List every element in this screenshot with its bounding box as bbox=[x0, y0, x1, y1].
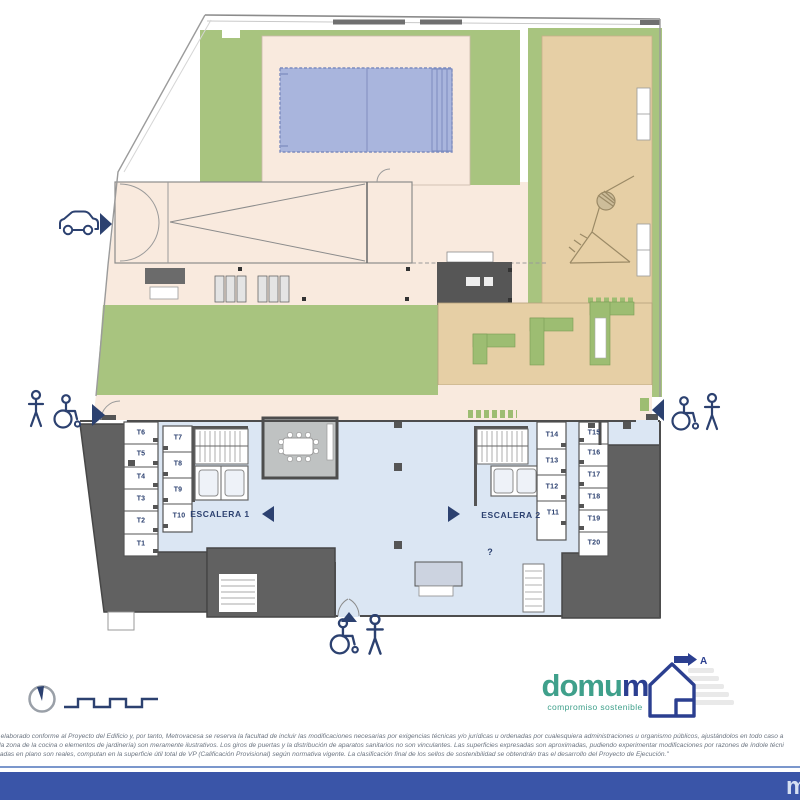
logo-tagline: compromiso sostenible bbox=[540, 702, 650, 712]
lawn bbox=[96, 305, 440, 397]
pedestrian-entrance-right bbox=[652, 394, 719, 430]
storage-block-right-outer bbox=[579, 422, 608, 556]
storage-block-right-inner bbox=[537, 422, 566, 540]
meeting-room bbox=[263, 418, 337, 478]
person-icon bbox=[705, 394, 719, 429]
room-label-t6: T6 bbox=[137, 430, 146, 437]
room-label-t5: T5 bbox=[137, 451, 146, 458]
energy-rating-letter: A bbox=[700, 656, 707, 667]
house-outline bbox=[650, 664, 694, 716]
room-label-t19: T19 bbox=[588, 516, 601, 523]
car-icon bbox=[60, 212, 98, 235]
room-label-t8: T8 bbox=[174, 461, 183, 468]
room-label-t18: T18 bbox=[588, 494, 601, 501]
logo-block: domum compromiso sostenible bbox=[540, 670, 650, 712]
person-icon bbox=[29, 391, 43, 426]
stair-core-1 bbox=[192, 426, 248, 502]
table bbox=[283, 438, 313, 455]
room-label-t13: T13 bbox=[546, 458, 559, 465]
logo-wordmark: domum bbox=[540, 670, 650, 701]
car-entrance bbox=[60, 212, 112, 236]
entry-threshold-right bbox=[646, 414, 658, 420]
room-label-t14: T14 bbox=[546, 432, 559, 439]
room-label-t17: T17 bbox=[588, 472, 601, 479]
room-label-t1: T1 bbox=[137, 541, 146, 548]
room-label-t16: T16 bbox=[588, 450, 601, 457]
stair1-label: ESCALERA 1 bbox=[190, 509, 250, 519]
disclaimer-line-3: Dejadas en plano son reales, computan en… bbox=[0, 750, 800, 759]
outdoor-counter bbox=[447, 252, 493, 262]
energy-house-icon: A bbox=[636, 652, 736, 722]
room-label-t9: T9 bbox=[174, 487, 183, 494]
room-label-t10: T10 bbox=[173, 513, 186, 520]
pool bbox=[280, 68, 452, 152]
disclaimer-text: ido elaborado conforme al Proyecto del E… bbox=[0, 732, 800, 759]
room-label-t2: T2 bbox=[137, 518, 146, 525]
room-label-t3: T3 bbox=[137, 496, 146, 503]
wheelchair-icon bbox=[673, 397, 699, 429]
room-label-t7: T7 bbox=[174, 435, 183, 442]
room-label-t15: T15 bbox=[588, 430, 601, 437]
pedestrian-entrance-left bbox=[29, 391, 105, 428]
exterior-door-step bbox=[108, 612, 134, 630]
brochure-page: T6 T5 T4 T3 T2 T1 T7 T8 T9 T10 T14 T13 T… bbox=[0, 0, 800, 800]
person-icon bbox=[367, 615, 382, 654]
room-label-t20: T20 bbox=[588, 540, 601, 547]
stair2-label: ESCALERA 2 bbox=[481, 510, 541, 520]
footer-brand-letter: m bbox=[786, 773, 800, 800]
disclaimer-line-1: ido elaborado conforme al Proyecto del E… bbox=[0, 732, 800, 741]
graphic-scale-bar bbox=[64, 699, 158, 707]
building bbox=[80, 398, 660, 630]
room-label-t11: T11 bbox=[547, 510, 559, 517]
pedestrian-entrance-bottom bbox=[331, 615, 383, 654]
disclaimer-line-2: en la zona de la cocina o elementos de j… bbox=[0, 741, 800, 750]
info-mark: ? bbox=[487, 547, 493, 557]
rating-arrow bbox=[688, 653, 697, 666]
room-label-t4: T4 bbox=[137, 474, 146, 481]
wheelchair-icon bbox=[55, 395, 81, 427]
room-label-t12: T12 bbox=[546, 484, 559, 491]
wheelchair-icon bbox=[331, 619, 358, 653]
footer-brand-bar: m bbox=[0, 772, 800, 800]
reception-desk bbox=[415, 562, 462, 586]
north-arrow-icon bbox=[30, 686, 55, 712]
pergola-table bbox=[145, 268, 185, 284]
storage-block-left-outer bbox=[124, 422, 158, 556]
logo-text-green: domu bbox=[542, 668, 622, 703]
entry-arrow-right bbox=[100, 213, 112, 235]
terrace-seating bbox=[438, 302, 652, 385]
footer-divider bbox=[0, 766, 800, 768]
